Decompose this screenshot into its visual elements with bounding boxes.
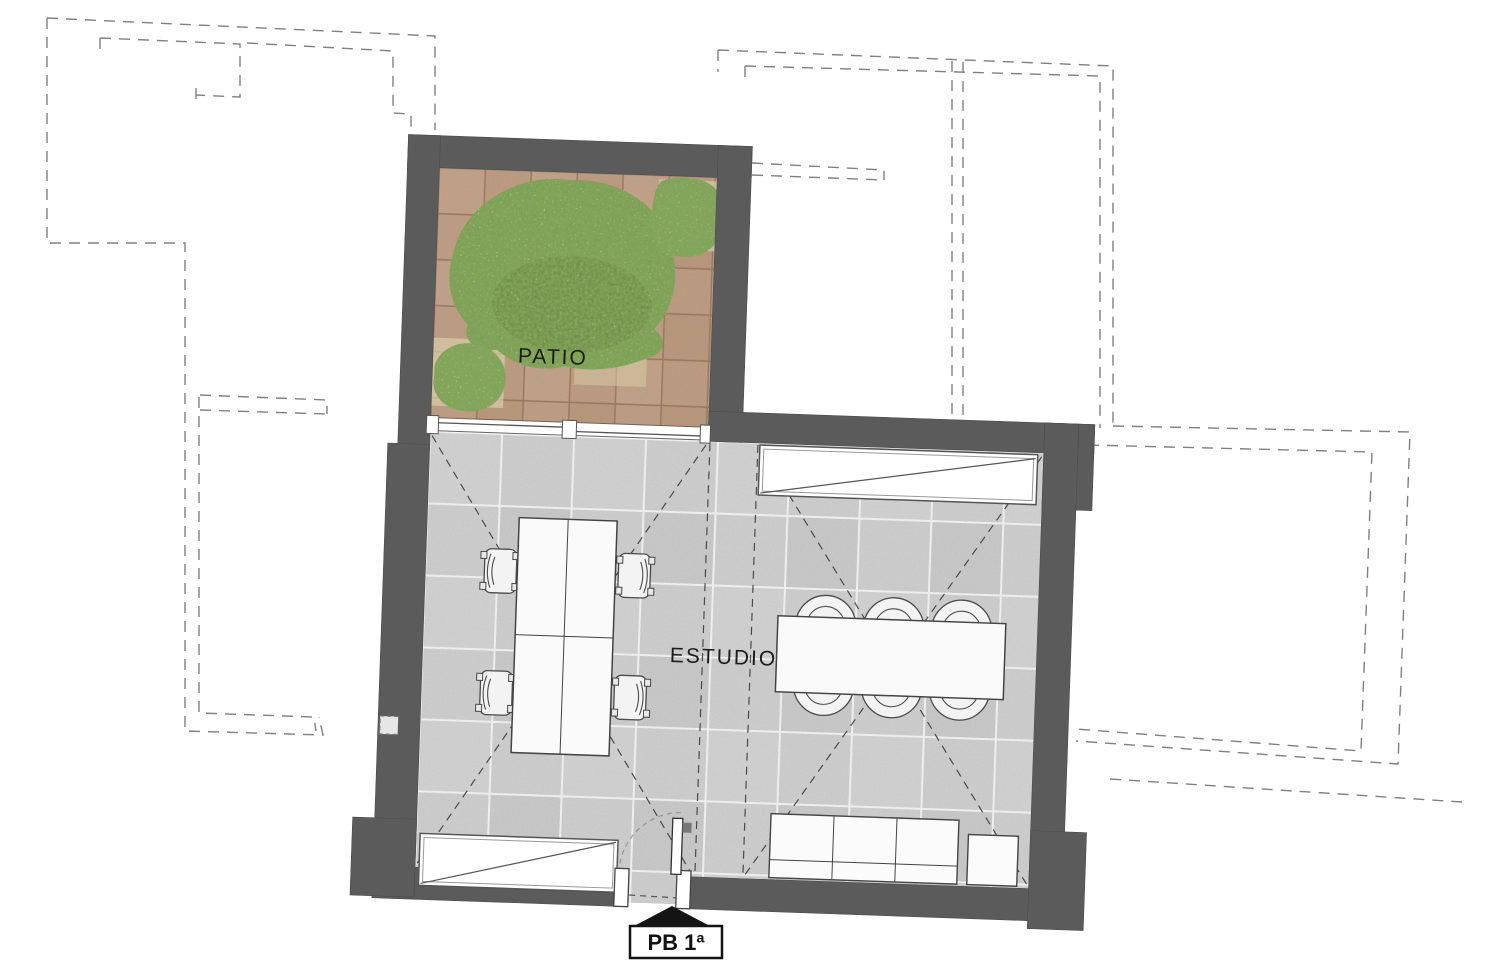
context-outline-right-rect <box>1076 424 1410 764</box>
south-window-sill <box>418 833 618 892</box>
floor-plan-canvas: PATIO ESTUDIO PB 1ª <box>0 0 1500 960</box>
entrance-marker: PB 1ª <box>630 906 722 958</box>
office-chair <box>616 553 656 598</box>
mullion <box>562 420 577 438</box>
north-window-sill <box>758 445 1038 505</box>
context-outline-top-right <box>718 50 1113 428</box>
estudio-label: ESTUDIO <box>669 644 777 671</box>
wall-corner-se <box>1027 831 1086 931</box>
wall-corner-sw <box>350 817 417 897</box>
context-outline-left-outer <box>47 18 435 735</box>
building: PATIO ESTUDIO <box>349 127 1122 943</box>
context-outline-top-center <box>100 38 240 102</box>
context-outline-corner-line <box>1110 779 1462 802</box>
meeting-table <box>775 616 1006 700</box>
mullion <box>426 415 439 433</box>
shrub-highlight <box>650 176 723 258</box>
sofa <box>769 814 959 885</box>
door-leaf <box>671 818 683 874</box>
door-handle-icon <box>682 823 691 833</box>
door-jamb <box>614 868 629 906</box>
mullion <box>700 425 711 443</box>
context-double-line <box>952 61 963 424</box>
context-wall-finger <box>752 163 884 180</box>
office-chair <box>475 670 515 715</box>
context-outline-mid <box>247 43 411 131</box>
wall-niche-marker <box>380 716 399 735</box>
door-jamb <box>676 870 691 908</box>
office-chair <box>611 675 651 720</box>
entrance-label: PB 1ª <box>647 930 705 955</box>
side-table <box>967 835 1019 887</box>
office-chair <box>480 548 520 593</box>
context-outline-left-inner <box>199 395 327 731</box>
floor-plan: PATIO ESTUDIO PB 1ª <box>0 0 1500 960</box>
double-desk <box>511 518 617 756</box>
patio-label: PATIO <box>518 345 589 370</box>
